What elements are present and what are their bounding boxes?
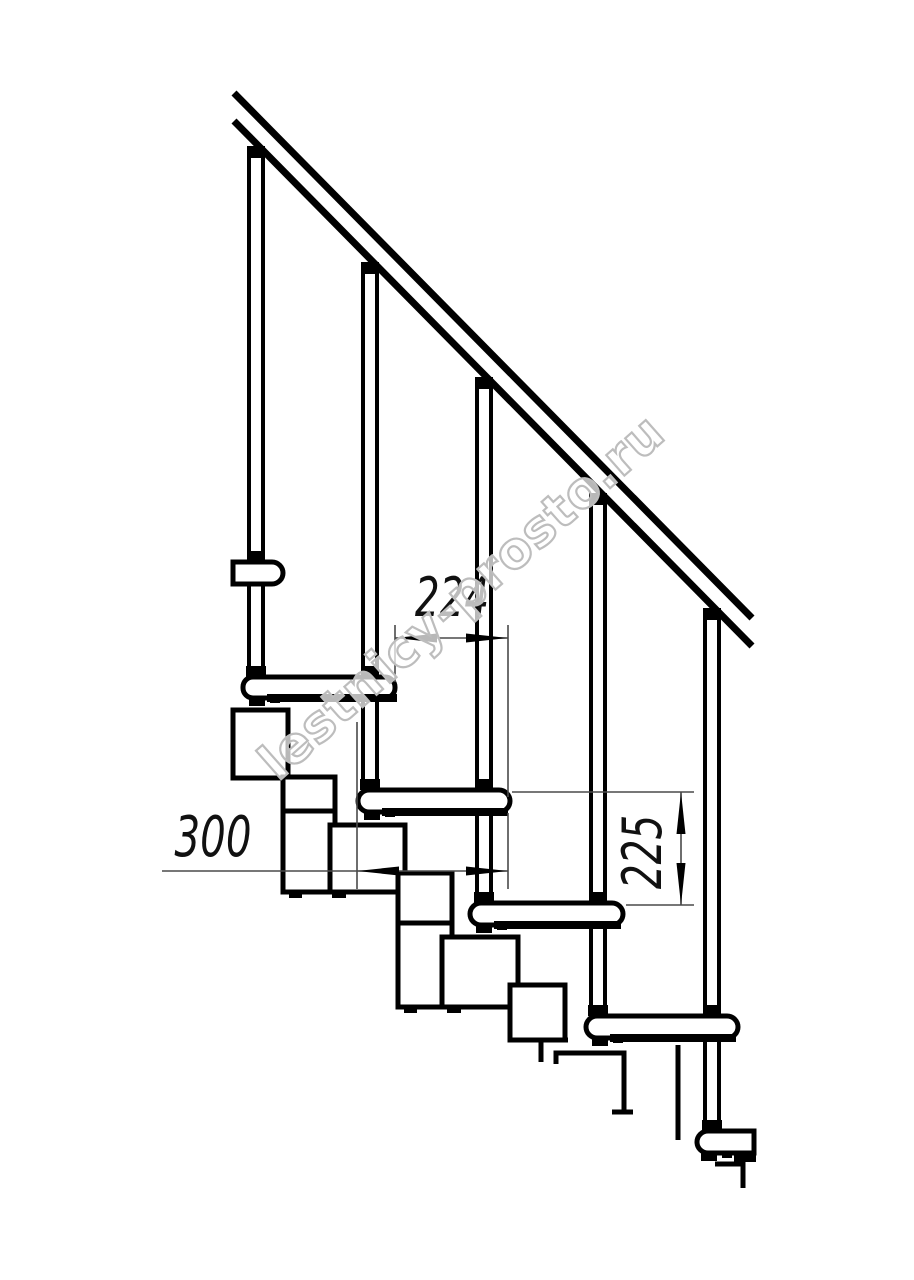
dim-depth-label: 300 — [175, 804, 252, 869]
arrowhead-down — [677, 863, 686, 905]
module-outline — [556, 1053, 624, 1112]
baluster-base — [474, 892, 494, 903]
tread-5 — [697, 1131, 756, 1162]
baluster-base — [588, 1005, 608, 1016]
tread-4 — [586, 1016, 738, 1046]
baluster-base — [360, 779, 380, 790]
tread-3 — [470, 903, 623, 933]
end-on-tread — [233, 562, 283, 584]
module-foot — [447, 1006, 461, 1013]
module-foot — [289, 891, 302, 898]
staircase-drawing: 224 300 225 lestnicy-prosto.ru — [0, 0, 914, 1280]
baluster-base — [702, 1120, 722, 1131]
tread-shadow — [610, 1034, 736, 1042]
arrowhead-up — [677, 792, 686, 834]
tread-connector — [613, 1037, 623, 1043]
baluster-4 — [591, 504, 605, 1007]
arrowhead-right — [466, 867, 508, 876]
tread-2 — [358, 790, 510, 820]
watermark-text: lestnicy-prosto.ru — [248, 403, 676, 791]
tread-connector — [592, 1037, 608, 1046]
spine-module — [510, 985, 565, 1040]
tread-shadow — [734, 1154, 756, 1162]
tread-connector — [701, 1152, 717, 1161]
spine-module — [283, 777, 335, 892]
tread-connector — [476, 924, 492, 933]
baluster-collar — [247, 551, 265, 562]
tread-connector — [249, 697, 265, 706]
arrowhead-right — [466, 634, 508, 643]
baluster-collar — [589, 892, 607, 903]
baluster-1 — [249, 157, 263, 670]
tread-shadow — [382, 808, 508, 816]
module-foot — [332, 891, 346, 898]
baluster-collar — [475, 779, 493, 790]
dim-rise-label: 225 — [612, 815, 675, 889]
module-outline — [715, 1164, 743, 1188]
module-foot — [404, 1006, 417, 1013]
tread-shadow — [494, 921, 621, 929]
spine-module — [442, 937, 518, 1007]
tread-connector — [270, 697, 280, 703]
top-landing-tread-end — [233, 562, 283, 584]
baluster-5 — [705, 619, 719, 1122]
spine-module — [330, 825, 405, 892]
tread-connector — [497, 924, 507, 930]
baluster-base — [246, 666, 266, 677]
tread-connector — [385, 811, 395, 817]
baluster-collar — [703, 1005, 721, 1016]
drawing-canvas: 224 300 225 lestnicy-prosto.ru — [0, 0, 914, 1280]
tread-connector — [364, 811, 380, 820]
tread-connector — [722, 1152, 732, 1158]
